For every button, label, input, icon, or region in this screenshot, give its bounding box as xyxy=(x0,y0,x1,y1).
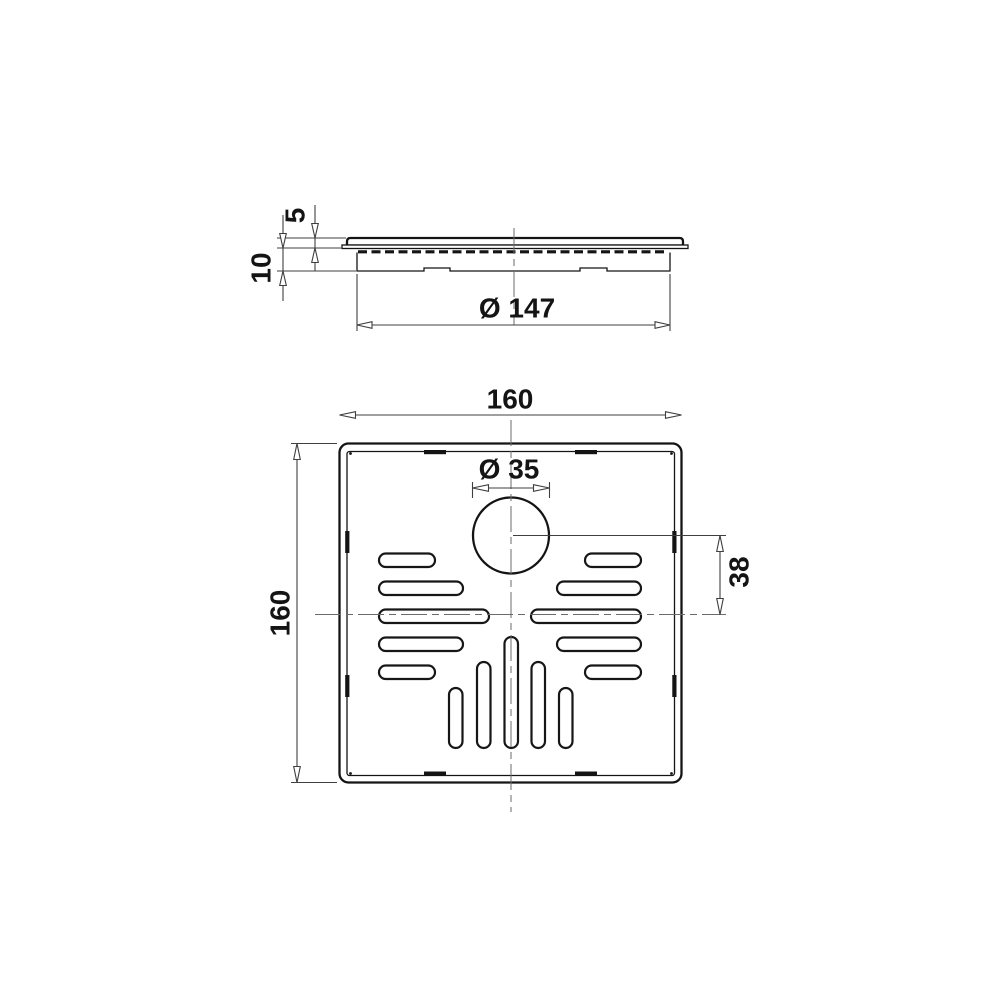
clip-top-right xyxy=(575,450,597,454)
slot-left-row2 xyxy=(379,582,463,596)
clip-right-upper xyxy=(672,531,676,553)
dim-label-flange-diameter: Ø 147 xyxy=(479,293,555,324)
clip-left-upper xyxy=(345,531,349,553)
slot-vertical-outer-left xyxy=(449,688,463,748)
clip-bottom-left xyxy=(424,772,446,776)
slot-right-row3 xyxy=(531,610,641,624)
dim160top-arrow-right xyxy=(666,412,682,419)
dim-label-outlet-offset: 38 xyxy=(724,556,755,587)
dim10-arrow-bottom xyxy=(280,271,287,286)
dim-body-depth: 10 xyxy=(246,215,357,301)
dim-outer-width: 160 xyxy=(340,384,682,419)
dim5-arrow-bottom xyxy=(312,248,319,263)
slot-right-row2 xyxy=(557,582,641,596)
dim-lid-thickness: 5 xyxy=(277,205,346,271)
slot-left-row1 xyxy=(379,554,435,568)
dim147-arrow-left xyxy=(357,322,372,329)
dim160top-arrow-left xyxy=(340,412,356,419)
corner-dot-top-left xyxy=(349,452,352,455)
dim-label-lid-thickness: 5 xyxy=(280,208,311,224)
dim147-arrow-right xyxy=(655,322,670,329)
slot-vertical-outer-right xyxy=(559,688,573,748)
technical-drawing-canvas: 5 10 Ø 147 xyxy=(0,0,1000,1000)
slot-left-row4 xyxy=(379,638,463,652)
drain-grate-drawing: 5 10 Ø 147 xyxy=(0,0,1000,1000)
clip-top-left xyxy=(424,450,446,454)
dim-label-body-depth: 10 xyxy=(246,252,277,283)
slot-right-row4 xyxy=(557,638,641,652)
dim10-arrow-top xyxy=(280,234,287,249)
side-lid-rim xyxy=(342,245,688,249)
dim38-arrow-bottom xyxy=(717,599,724,615)
dim5-arrow-top xyxy=(312,224,319,239)
corner-dot-top-right xyxy=(670,452,673,455)
dim-label-outer-width: 160 xyxy=(487,384,534,415)
slot-left-row3 xyxy=(379,610,489,624)
dim-label-outlet-diameter: Ø 35 xyxy=(479,454,540,485)
corner-dot-bottom-right xyxy=(670,772,673,775)
side-view: 5 10 Ø 147 xyxy=(246,205,689,331)
corner-dot-bottom-left xyxy=(349,772,352,775)
slot-vertical-inner-right xyxy=(532,662,546,748)
clip-bottom-right xyxy=(575,772,597,776)
dim-outer-height: 160 xyxy=(265,444,338,783)
dim38-arrow-top xyxy=(717,536,724,552)
clip-left-lower xyxy=(345,675,349,697)
slot-right-row5 xyxy=(585,666,641,680)
dim160left-arrow-top xyxy=(294,444,301,460)
slot-right-row1 xyxy=(585,554,641,568)
dim160left-arrow-bottom xyxy=(294,767,301,783)
dim-label-outer-height: 160 xyxy=(265,590,296,637)
slot-left-row5 xyxy=(379,666,435,680)
clip-right-lower xyxy=(672,675,676,697)
plan-view: 160 160 Ø 35 xyxy=(265,384,755,813)
slot-vertical-inner-left xyxy=(477,662,491,748)
